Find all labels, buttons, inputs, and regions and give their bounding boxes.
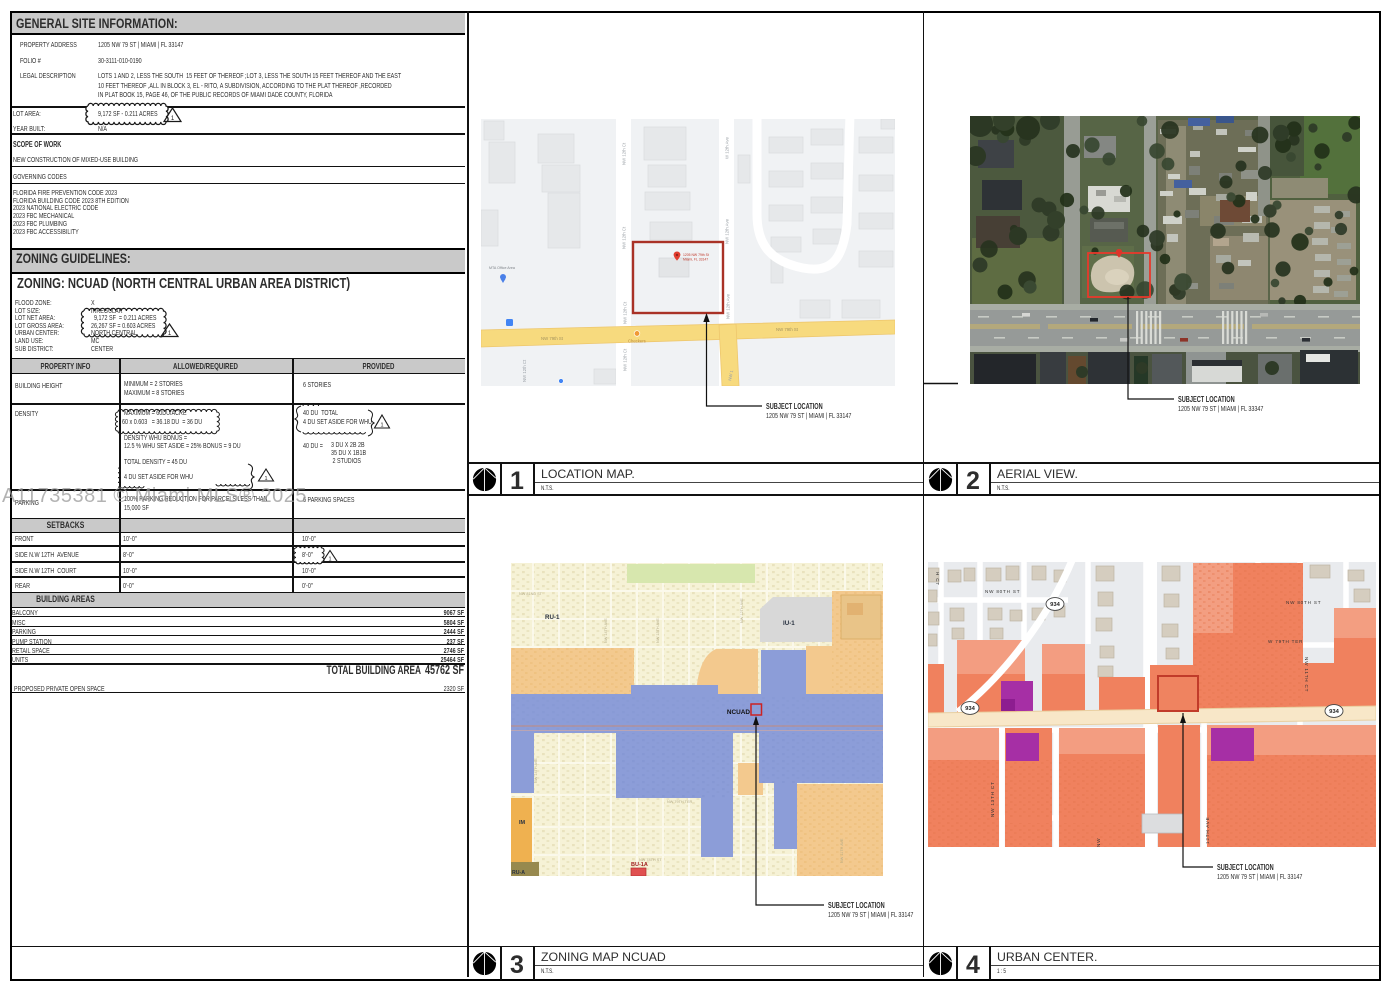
svg-text:1: 1 [328,557,331,563]
svg-text:1: 1 [264,476,267,482]
svg-text:1: 1 [380,423,383,429]
